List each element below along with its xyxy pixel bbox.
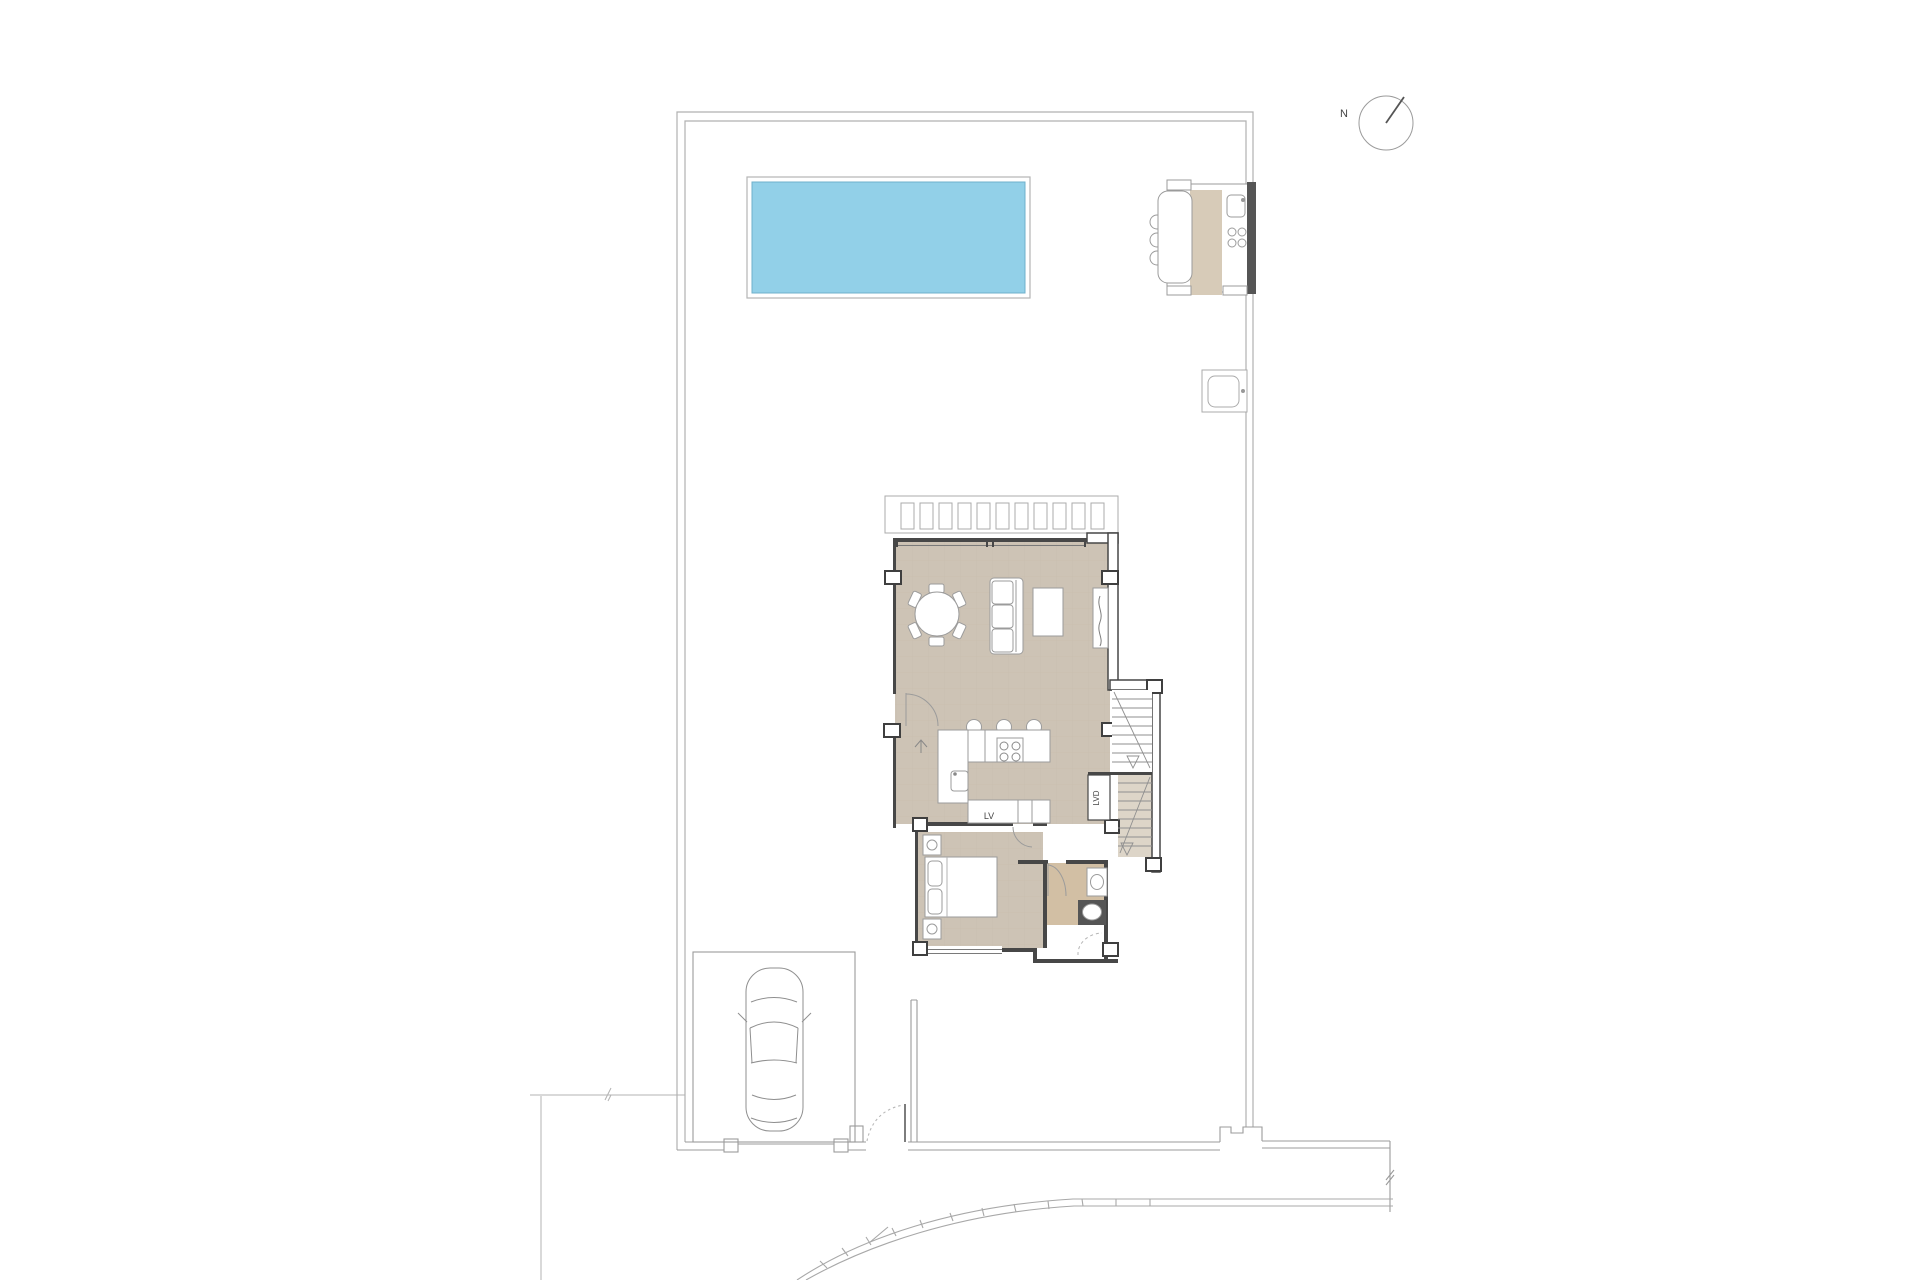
- north-indicator: N: [1340, 96, 1413, 150]
- pillow: [928, 889, 942, 914]
- coffee-table: [1033, 588, 1063, 636]
- outdoor-bench: [1223, 286, 1247, 295]
- gate-post: [834, 1139, 848, 1152]
- pergola-slat: [1072, 503, 1085, 529]
- outdoor-wall-edge: [1247, 182, 1256, 294]
- outdoor-faucet-icon: [1241, 198, 1245, 202]
- pergola-slat: [1091, 503, 1104, 529]
- pillar: [913, 818, 927, 831]
- pillar: [1146, 858, 1161, 871]
- shower-tray-icon: [1083, 904, 1102, 920]
- pillar: [884, 724, 900, 737]
- sofa-cushion: [992, 605, 1013, 628]
- curb-inner: [806, 1206, 1393, 1280]
- swimming-pool: [747, 177, 1030, 298]
- outdoor-kitchen: [1150, 180, 1256, 295]
- car: [738, 968, 811, 1131]
- pergola-slat: [977, 503, 990, 529]
- stair-annex-right-wall: [1152, 680, 1160, 872]
- pergola-slat: [1053, 503, 1066, 529]
- north-label: N: [1340, 108, 1348, 120]
- house: LVD LV: [884, 496, 1162, 963]
- pergola-slat: [939, 503, 952, 529]
- pergola: [885, 496, 1118, 533]
- road-curb: [797, 1199, 1393, 1280]
- walkway-wall: [911, 1000, 917, 1142]
- spa-fixture: [1202, 370, 1247, 412]
- pergola-slat: [958, 503, 971, 529]
- outdoor-bench: [1167, 286, 1191, 295]
- dropped-curb-mark: [869, 1227, 888, 1243]
- curb-outer: [797, 1199, 1393, 1280]
- laundry-closet: LVD: [1088, 775, 1110, 820]
- gate-post: [724, 1139, 738, 1152]
- dishwasher-label: LV: [984, 811, 994, 821]
- car-body: [746, 968, 803, 1131]
- pergola-slat: [1034, 503, 1047, 529]
- pillar: [1103, 943, 1118, 956]
- gate-post-right: [1220, 1127, 1262, 1142]
- kitchen-counter-left: [938, 730, 968, 803]
- gate-post: [850, 1126, 863, 1142]
- dining-chair: [929, 637, 944, 646]
- dining-table: [915, 592, 959, 636]
- pillar: [1105, 820, 1119, 833]
- spa-valve-icon: [1241, 389, 1245, 393]
- outdoor-counter-strip: [1190, 190, 1222, 295]
- site-plan-canvas: N: [0, 0, 1920, 1280]
- kitchen-counter-bottom: [968, 800, 1050, 823]
- wall-band-right: [1108, 533, 1118, 690]
- sideboard: [1093, 588, 1108, 648]
- pillow: [928, 861, 942, 886]
- outdoor-table: [1158, 191, 1192, 283]
- pergola-slat: [1015, 503, 1028, 529]
- laundry-label: LVD: [1092, 790, 1101, 805]
- outdoor-bench: [1167, 180, 1191, 190]
- stairs-upper-flight: [1112, 690, 1152, 772]
- site-reference-lines: [530, 1088, 685, 1280]
- sofa-cushion: [992, 581, 1013, 604]
- bedroom-window: [928, 946, 1002, 954]
- pergola-slat: [920, 503, 933, 529]
- hob: [997, 738, 1023, 762]
- hall-door-swing-arc: [1078, 933, 1102, 955]
- pillar: [1102, 571, 1118, 584]
- pillar: [885, 571, 901, 584]
- pergola-slat: [996, 503, 1009, 529]
- bath-sink-bowl-icon: [1091, 875, 1104, 890]
- pergola-slat: [901, 503, 914, 529]
- garage: [693, 952, 917, 1142]
- pool-water: [752, 182, 1025, 293]
- nightstand: [923, 835, 941, 855]
- sofa-cushion: [992, 629, 1013, 652]
- pedestrian-gate-swing-arc: [867, 1105, 903, 1141]
- sofa: [990, 578, 1023, 654]
- pillar: [913, 942, 927, 955]
- dining-set: [908, 584, 967, 646]
- faucet-icon: [953, 772, 957, 776]
- nightstand: [923, 919, 941, 939]
